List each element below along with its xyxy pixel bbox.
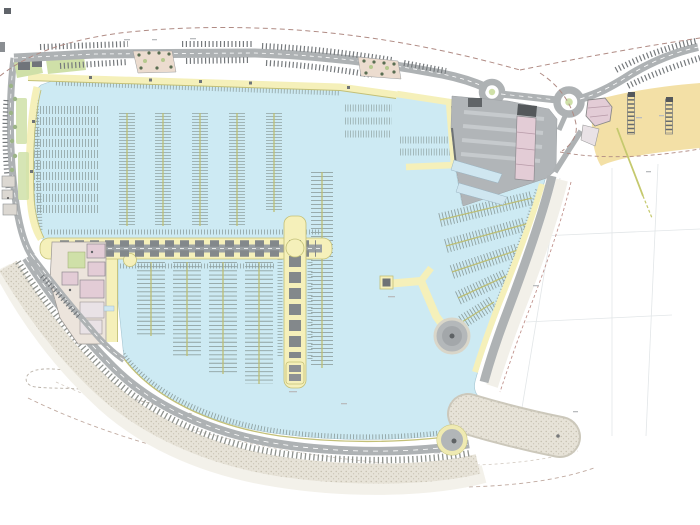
shore-building <box>18 61 30 70</box>
fuel-station-building <box>383 279 391 287</box>
map-tag <box>104 306 114 311</box>
east-breakwater-arm <box>468 414 560 438</box>
marina-site-plan <box>0 0 700 525</box>
courtyard-green <box>68 252 85 268</box>
south-breakwater-roundhead <box>437 425 467 455</box>
pier-junction <box>286 239 304 257</box>
crane-pad <box>468 98 482 107</box>
shore-facility <box>2 176 15 187</box>
marina-site-plan-canvas <box>0 0 700 525</box>
corner-mark <box>0 42 5 52</box>
corner-mark <box>4 8 11 14</box>
apron-building-dark <box>517 104 537 117</box>
